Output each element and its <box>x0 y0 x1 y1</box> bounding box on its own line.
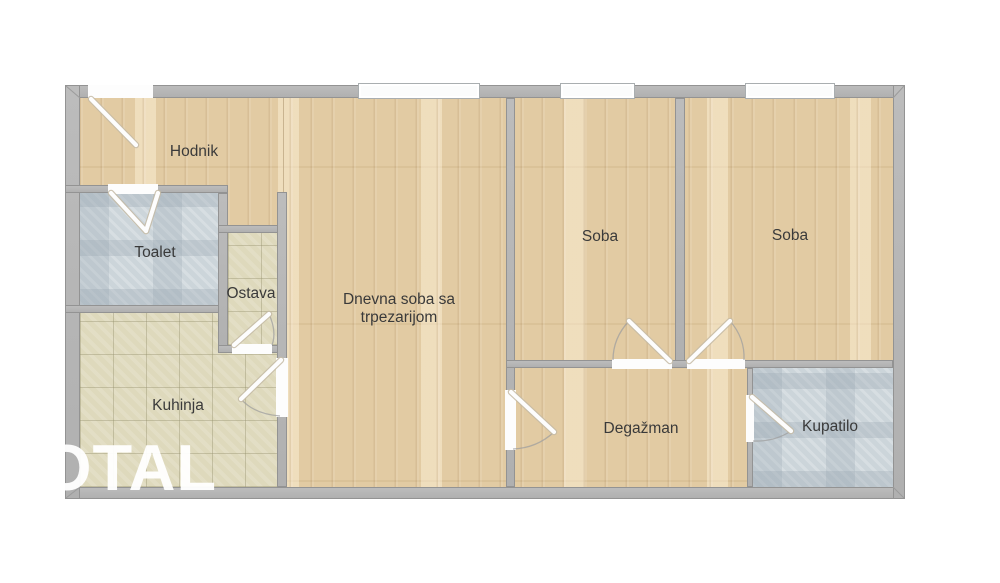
soba2-door-opening <box>687 359 745 369</box>
room-label-degazman: Degažman <box>604 420 679 438</box>
watermark: OTAL <box>55 438 240 499</box>
hodnik-dnevna-boundary <box>283 98 284 192</box>
wall-toalet-ostava <box>218 193 228 353</box>
room-label-dnevna: Dnevna soba sa trpezarijom <box>340 291 458 327</box>
degazman-door-opening <box>505 390 516 450</box>
toalet-door-opening <box>108 184 158 194</box>
window-dnevna <box>358 83 480 99</box>
window-soba1 <box>560 83 635 99</box>
kupatilo-door-opening <box>746 395 754 442</box>
room-label-toalet: Toalet <box>134 244 175 262</box>
room-label-kupatilo: Kupatilo <box>802 418 858 436</box>
entry-door-opening <box>88 85 153 98</box>
wall-soba-divider <box>675 98 685 368</box>
ostava-door-opening <box>232 344 272 354</box>
room-label-soba1: Soba <box>582 228 618 246</box>
room-label-hodnik: Hodnik <box>170 143 218 161</box>
watermark-text: OTAL <box>55 438 240 498</box>
window-soba2 <box>745 83 835 99</box>
room-label-ostava: Ostava <box>226 285 275 303</box>
room-label-soba2: Soba <box>772 227 808 245</box>
floor-plan: Hodnik Toalet Ostava Kuhinja Dnevna soba… <box>0 0 1000 583</box>
wall-toalet-bottom <box>65 305 228 313</box>
soba1-door-opening <box>612 359 672 369</box>
room-label-kuhinja: Kuhinja <box>152 397 204 415</box>
wall-left <box>65 85 80 499</box>
kuhinja-door-opening <box>276 358 288 417</box>
wall-kuhinja-right <box>277 192 287 487</box>
wall-right <box>893 85 905 499</box>
